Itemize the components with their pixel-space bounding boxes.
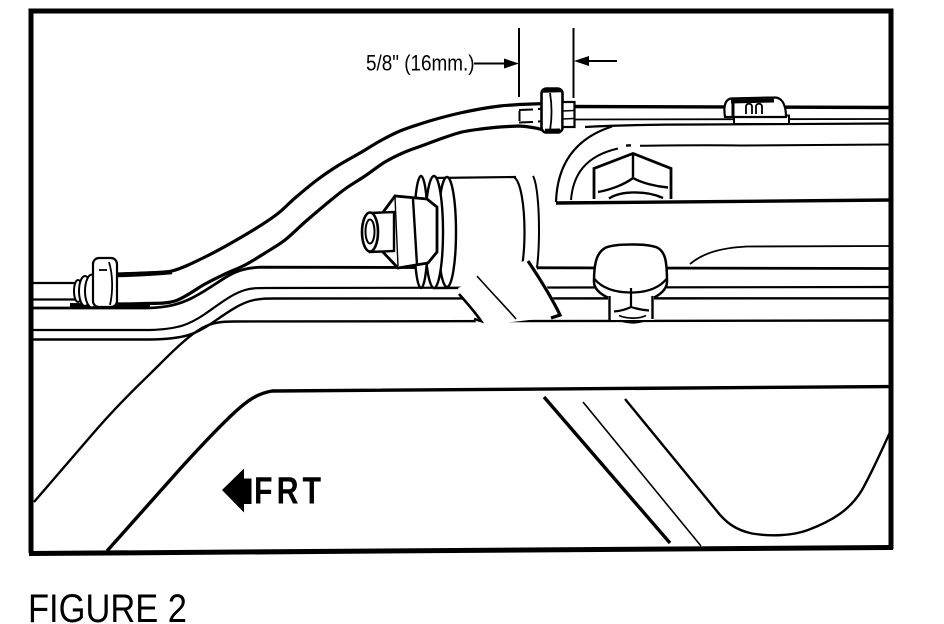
svg-text:FIGURE 2: FIGURE 2 [28, 586, 187, 624]
svg-text:FRT: FRT [254, 470, 325, 512]
svg-text:5/8" (16mm.): 5/8" (16mm.) [366, 51, 475, 76]
